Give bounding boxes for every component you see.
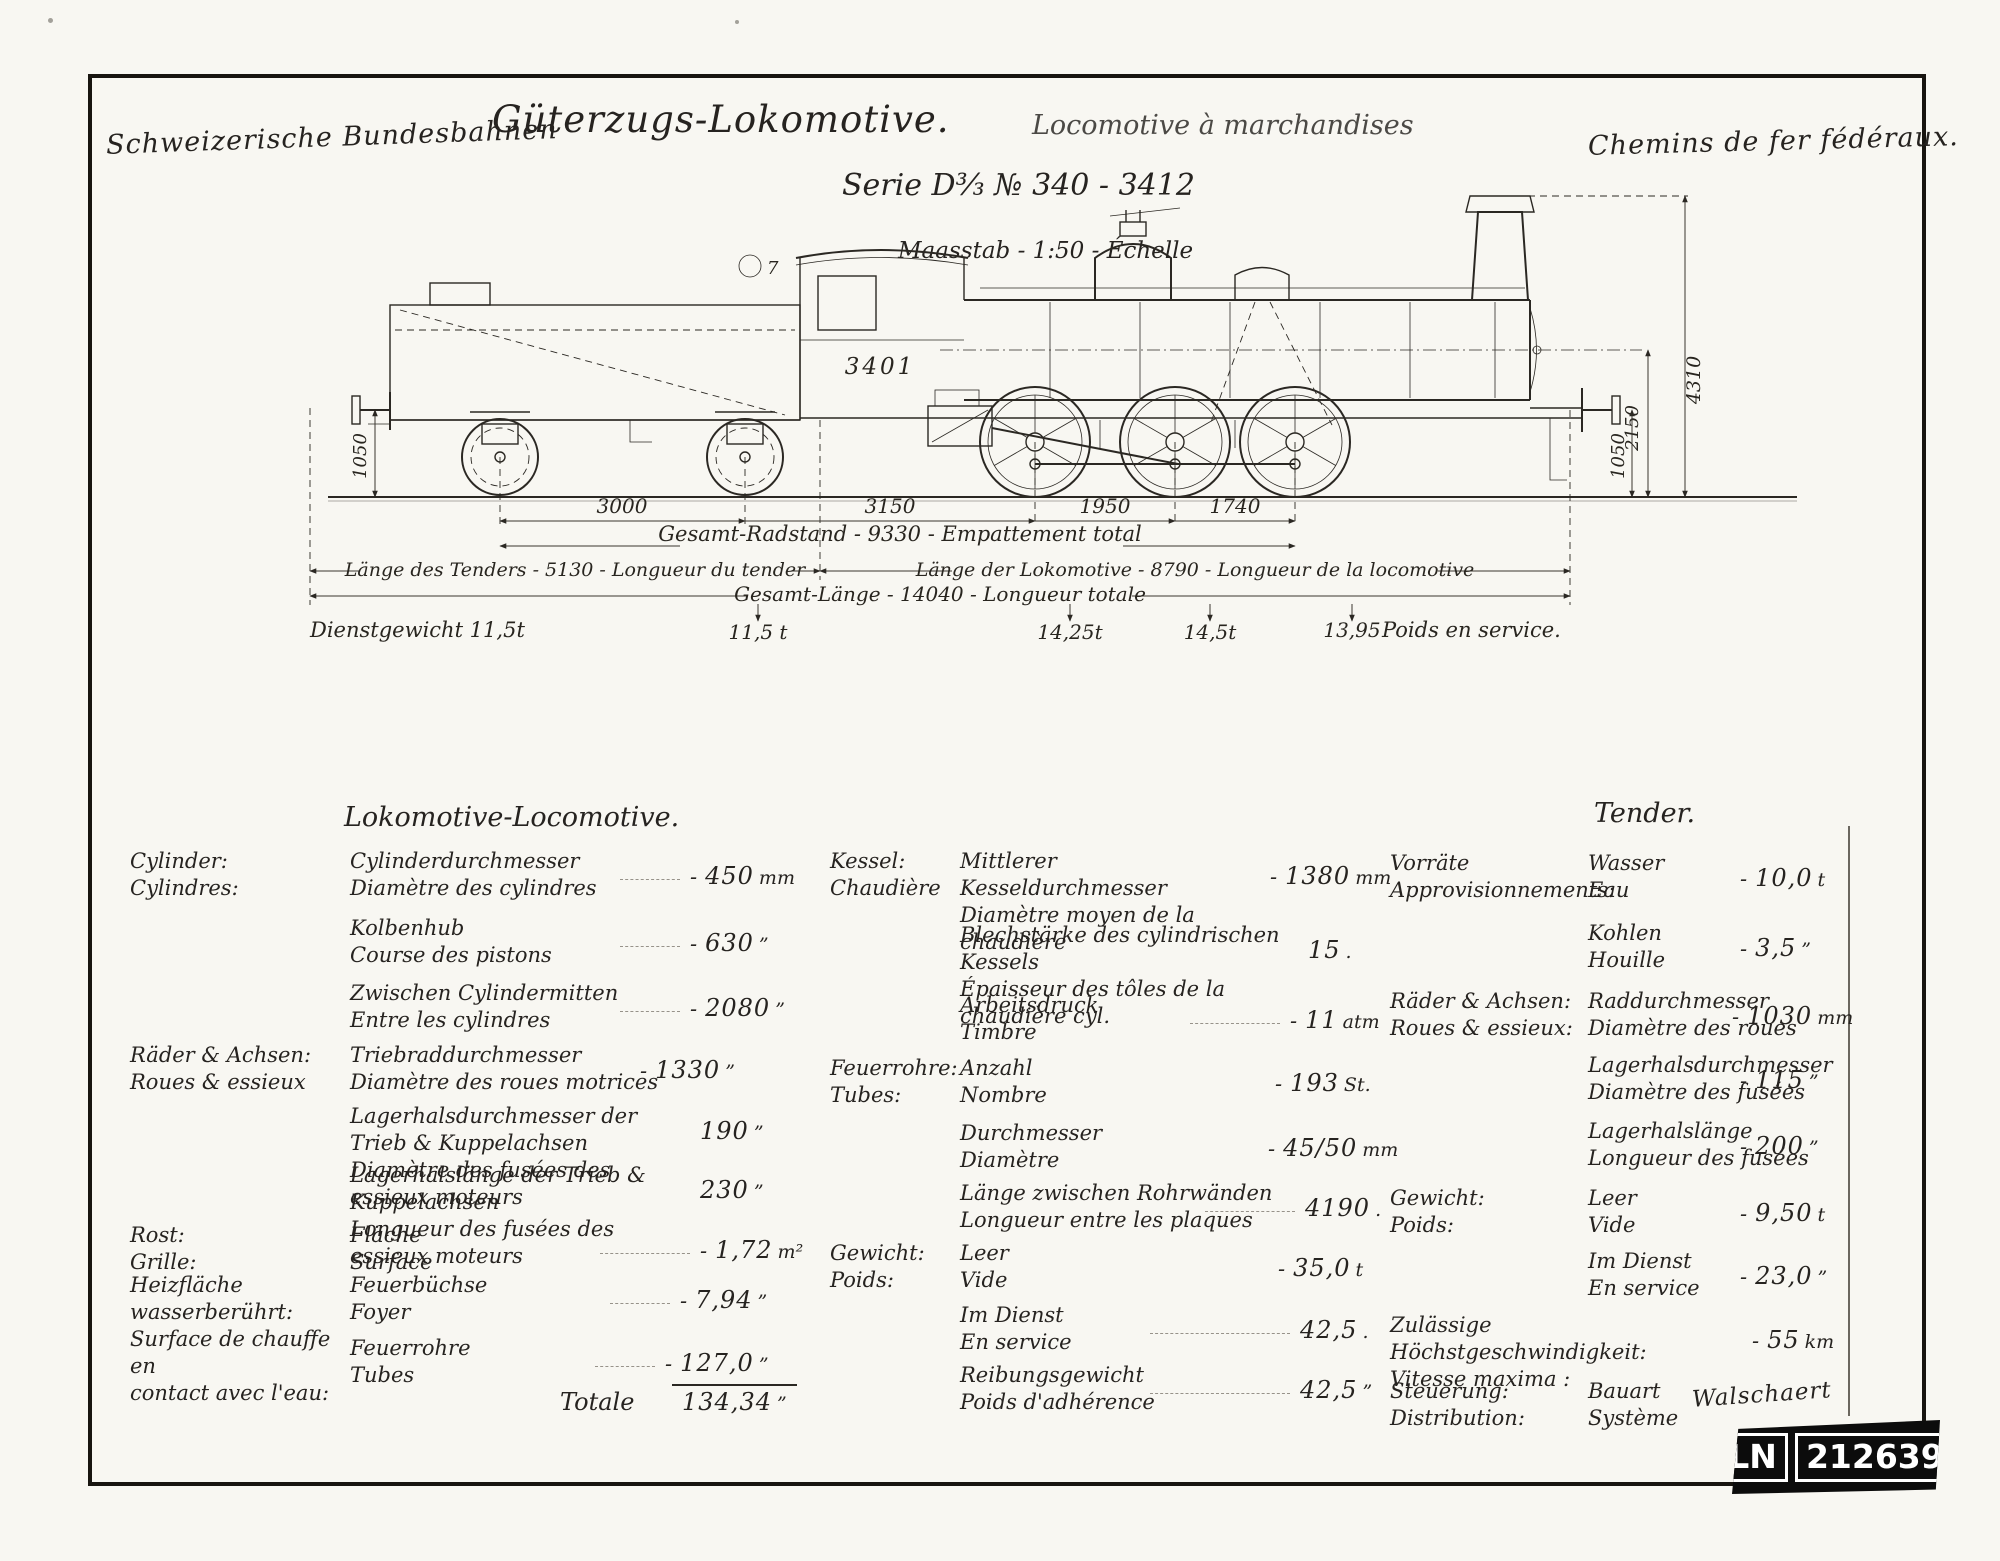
spec-de: Wasser	[1588, 850, 1664, 877]
spec-value: -200”	[1740, 1132, 1819, 1160]
spec-de: Fläche	[350, 1222, 432, 1249]
spec-value: -127,0”	[595, 1349, 769, 1377]
spec-de: Leer	[960, 1240, 1009, 1267]
spec-value: 230”	[700, 1176, 764, 1204]
category-fr: Poids:	[830, 1267, 925, 1294]
loco-length-label: Länge der Lokomotive - 8790 - Longueur d…	[915, 559, 1475, 581]
spec-de: Reibungsgewicht	[960, 1362, 1155, 1389]
axle-spacing-dimensions: 3000 3150 1950 1740	[500, 494, 1295, 521]
figure-mark-circle	[739, 255, 761, 277]
category-fr: Approvisionnements:	[1390, 877, 1600, 904]
spec-fr: Vide	[1588, 1212, 1637, 1239]
locomotive-side-elevation: 3401 7	[280, 180, 1810, 650]
axle-weight: 14,5t	[1184, 620, 1238, 644]
drawing-title-french: Locomotive à marchandises	[1032, 110, 1414, 141]
spec-value: -1030mm	[1732, 1002, 1853, 1030]
spec-fr: Système	[1588, 1405, 1678, 1432]
axle-load-annotations: Dienstgewicht 11,5t 11,5 t 14,25t 14,5t …	[309, 604, 1561, 644]
dim-gap: 3150	[865, 494, 916, 518]
spec-value: 190”	[700, 1117, 764, 1145]
spec-de: Durchmesser	[960, 1120, 1102, 1147]
scan-speck	[735, 20, 739, 24]
scan-speck	[48, 18, 53, 23]
category-fr: Cylindres:	[130, 875, 239, 902]
spec-value: -45/50mm	[1268, 1134, 1398, 1162]
spec-fr: Diamètre des cylindres	[350, 875, 597, 902]
axle-weight: 13,95	[1323, 618, 1380, 642]
spec-value: -3,5”	[1740, 934, 1811, 962]
rail-line	[328, 497, 1797, 501]
total-wheelbase-dimension: Gesamt-Radstand - 9330 - Empattement tot…	[500, 522, 1295, 546]
spec-de: Zwischen Cylindermitten	[350, 980, 618, 1007]
spec-de: Cylinderdurchmesser	[350, 848, 597, 875]
category-de: Steuerung:	[1390, 1378, 1525, 1405]
spec-value: -630”	[620, 929, 769, 957]
category-de: Gewicht:	[830, 1240, 925, 1267]
smokebox-front	[1530, 300, 1620, 480]
buffer-height-dim-left: 1050	[350, 433, 371, 479]
spec-value: -1380mm	[1270, 862, 1391, 890]
category-de: Zulässige Höchstgeschwindigkeit:	[1390, 1312, 1730, 1366]
spec-fr: Timbre	[960, 1019, 1099, 1046]
spec-fr: Vide	[960, 1267, 1009, 1294]
loco-table-heading: Lokomotive-Locomotive.	[344, 802, 679, 833]
spec-value: -1330”	[640, 1056, 735, 1084]
archive-stamp: LN 212639	[1732, 1420, 1940, 1494]
spec-value: -7,94”	[610, 1286, 767, 1314]
spec-de: Leer	[1588, 1185, 1637, 1212]
category-fr: Chaudière	[830, 875, 941, 902]
spec-de: Triebraddurchmesser	[350, 1042, 658, 1069]
drawing-title-german: Güterzugs-Lokomotive.	[492, 98, 950, 141]
cylinder-and-motion	[928, 390, 1300, 469]
category-de: Heizfläche wasserberührt:	[130, 1272, 360, 1326]
stamp-code: LN	[1717, 1433, 1788, 1482]
spec-de: Lagerhalsdurchmesser der Trieb & Kuppela…	[350, 1103, 690, 1157]
table-right-rule	[1848, 826, 1850, 1416]
tender-length-label: Länge des Tenders - 5130 - Longueur du t…	[344, 559, 807, 581]
spec-value: -193St.	[1275, 1069, 1371, 1097]
vertical-dimensions: 4310 2150 1050 1050	[350, 196, 1705, 497]
spec-fr: En service	[960, 1329, 1072, 1356]
spec-fr: Course des pistons	[350, 942, 552, 969]
spec-value: -35,0t	[1278, 1254, 1363, 1282]
spec-de: Feuerrohre	[350, 1335, 471, 1362]
spec-de: Mittlerer Kesseldurchmesser	[960, 848, 1270, 902]
service-weight-french: Poids en service.	[1381, 618, 1561, 642]
category-de: Räder & Achsen:	[1390, 988, 1600, 1015]
totale-value: 134,34”	[672, 1384, 797, 1416]
spec-de: Kolbenhub	[350, 915, 552, 942]
stamp-number: 212639	[1795, 1433, 1955, 1482]
spec-value: 42,5”	[1150, 1376, 1372, 1404]
buffer-height-dim-right: 1050	[1608, 433, 1629, 479]
spec-value: -2080”	[620, 994, 785, 1022]
spec-value: 4190.	[1205, 1194, 1381, 1222]
total-length-label: Gesamt-Länge - 14040 - Longueur totale	[734, 582, 1146, 606]
category-de: Räder & Achsen:	[130, 1042, 311, 1069]
spec-fr: Poids d'adhérence	[960, 1389, 1155, 1416]
spec-fr: Eau	[1588, 877, 1664, 904]
category-de: Cylinder:	[130, 848, 239, 875]
spec-fr: Tubes	[350, 1362, 471, 1389]
spec-de: Kohlen	[1588, 920, 1665, 947]
category-fr: Roues & essieux:	[1390, 1015, 1600, 1042]
length-dimensions: Länge des Tenders - 5130 - Longueur du t…	[310, 559, 1570, 606]
spec-de: Im Dienst	[960, 1302, 1072, 1329]
spec-value: 15.	[1308, 936, 1352, 964]
spec-fr: En service	[1588, 1275, 1700, 1302]
cab-running-number: 3401	[845, 354, 916, 380]
dim-tender-wheelbase: 3000	[597, 494, 648, 518]
total-wheelbase-label: Gesamt-Radstand - 9330 - Empattement tot…	[658, 522, 1142, 546]
chimney-height-dim: 4310	[1683, 356, 1705, 405]
chimney	[1466, 196, 1534, 300]
steam-dome	[1095, 208, 1180, 300]
totale-label: Totale	[560, 1388, 634, 1416]
category-fr: Distribution:	[1390, 1405, 1525, 1432]
category-fr: Tubes:	[830, 1082, 958, 1109]
spec-de: Bauart	[1588, 1378, 1678, 1405]
spec-value: -450mm	[620, 862, 795, 890]
category-de: Feuerrohre:	[830, 1055, 958, 1082]
spec-value: -115”	[1740, 1066, 1819, 1094]
spec-fr: Diamètre	[960, 1147, 1102, 1174]
tender-table-heading: Tender.	[1594, 798, 1695, 829]
spec-fr: Houille	[1588, 947, 1665, 974]
spec-de: Anzahl	[960, 1055, 1047, 1082]
axle-weight: 11,5 t	[729, 620, 789, 644]
category-de: Kessel:	[830, 848, 941, 875]
spec-value: -11atm	[1190, 1006, 1380, 1034]
spec-fr: Entre les cylindres	[350, 1007, 618, 1034]
spec-fr: Foyer	[350, 1299, 487, 1326]
railway-name-german: Schweizerische Bundesbahnen	[106, 114, 558, 161]
spec-de: Feuerbüchse	[350, 1272, 487, 1299]
service-weight-label: Dienstgewicht 11,5t	[309, 618, 525, 642]
category-fr: Surface de chauffe en	[130, 1326, 360, 1380]
category-de: Vorräte	[1390, 850, 1600, 877]
category-fr: Roues & essieux	[130, 1069, 311, 1096]
drawing-sheet: { "header": { "org_de": "Schweizerische …	[0, 0, 2000, 1561]
spec-de: Lagerhalslänge der Trieb & Kuppelachsen	[350, 1162, 690, 1216]
dim-drivers-2-3: 1740	[1210, 494, 1261, 518]
spec-fr: Diamètre des roues motrices	[350, 1069, 658, 1096]
spec-value: -55km	[1752, 1326, 1834, 1354]
spec-value: -1,72m²	[600, 1236, 803, 1264]
tender-outline	[352, 283, 800, 495]
figure-mark: 7	[767, 258, 779, 279]
spec-value: 42,5.	[1150, 1316, 1368, 1344]
category-de: Rost:	[130, 1222, 196, 1249]
spec-de: Arbeitsdruck	[960, 992, 1099, 1019]
spec-value: -23,0”	[1740, 1262, 1827, 1290]
spec-fr: Nombre	[960, 1082, 1047, 1109]
spec-de: Blechstärke des cylindrischen Kessels	[960, 922, 1290, 976]
axle-weight: 14,25t	[1037, 620, 1103, 644]
railway-name-french: Chemins de fer fédéraux.	[1588, 121, 1960, 162]
category-fr: Poids:	[1390, 1212, 1485, 1239]
spec-de: Im Dienst	[1588, 1248, 1700, 1275]
spec-value: -10,0t	[1740, 864, 1825, 892]
spec-value: -9,50t	[1740, 1199, 1825, 1227]
dim-drivers-1-2: 1950	[1080, 494, 1131, 518]
cab-outline	[796, 250, 1582, 420]
category-de: Gewicht:	[1390, 1185, 1485, 1212]
category-fr-2: contact avec l'eau:	[130, 1380, 360, 1407]
